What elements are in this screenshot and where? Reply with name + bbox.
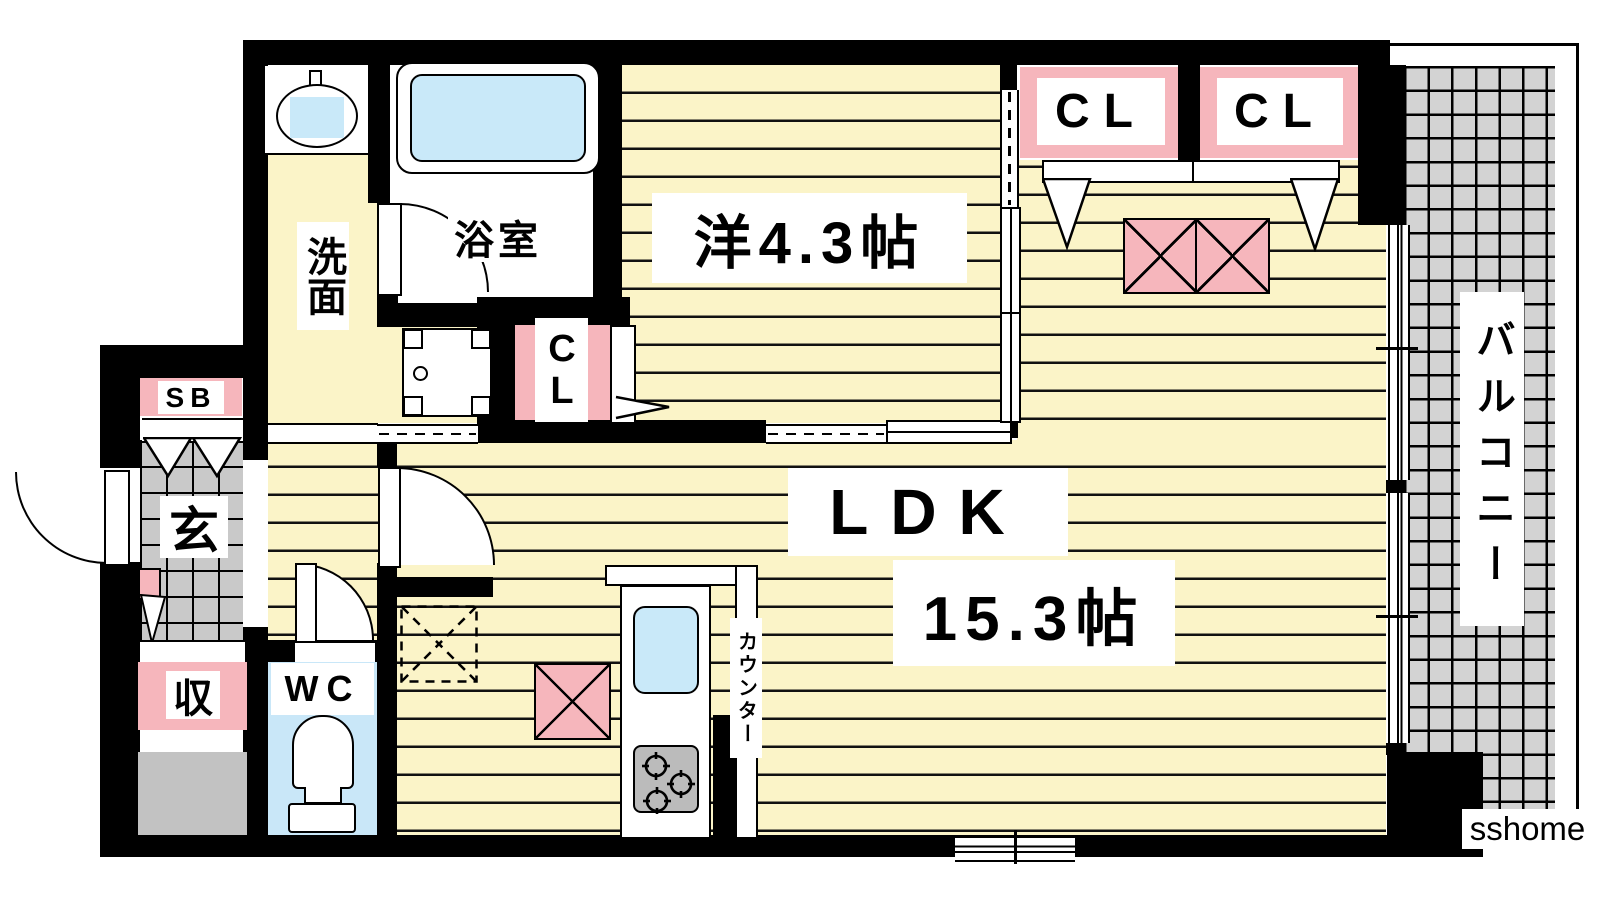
ldk-entry-door-panel <box>378 467 401 568</box>
wall-ldk-door-top <box>377 440 397 467</box>
entrance-label: 玄 <box>160 496 228 558</box>
partition-panel-joint <box>1002 312 1019 314</box>
shoe-box-label: SB <box>158 381 224 414</box>
entrance-step-wedge-icon <box>140 594 168 646</box>
closet-2-label: CL <box>1217 78 1343 145</box>
washer-pan-corner <box>403 396 423 416</box>
bathroom-door-panel <box>377 203 402 296</box>
closet-2-label-text: CL <box>1234 84 1326 139</box>
toilet-bowl <box>292 715 354 789</box>
kitchen-stove <box>633 745 699 813</box>
closet-folding-track-divider <box>1192 162 1194 181</box>
wall-ldk-door-bottom <box>377 563 397 658</box>
washroom-label: 洗面 <box>297 222 349 330</box>
ldk-size-label-text: 15.3帖 <box>923 568 1146 658</box>
fridge-space-box <box>534 663 611 740</box>
counter-label-text: カウンター <box>732 631 761 746</box>
bedroom-sliding-door-open <box>766 424 886 444</box>
washroom-accordion-door <box>377 424 478 444</box>
appliance-space-cell <box>1195 218 1270 294</box>
bathtub-water <box>410 74 586 162</box>
washer-pan-corner <box>403 329 423 349</box>
counter-label: カウンター <box>730 618 762 758</box>
shoe-box-door-icon <box>192 437 242 479</box>
wall-closet-gap <box>1178 65 1200 160</box>
wall-wc-right <box>377 658 397 835</box>
closet-1-label-text: CL <box>1055 84 1147 139</box>
closet-2-folding-door-icon <box>1290 178 1340 252</box>
wall-entrance-left <box>100 345 140 857</box>
meter-box <box>138 752 247 835</box>
closet-small-label-text: CL <box>540 328 583 412</box>
window-tick-upper <box>1376 347 1418 350</box>
wall-hall-stub <box>397 577 493 597</box>
bathroom-label-text: 浴室 <box>454 208 542 266</box>
washer-pan-corner <box>471 329 491 349</box>
balcony-window-lower <box>1388 493 1410 743</box>
washroom-label-text: 洗面 <box>294 236 352 316</box>
washroom-threshold <box>268 423 378 444</box>
bedroom-sliding-door-panel <box>886 420 1012 444</box>
toilet-tank <box>288 803 356 833</box>
washbasin-water <box>290 97 344 138</box>
bedroom-label: 洋4.3帖 <box>652 193 967 283</box>
ldk-label: LDK <box>788 468 1068 556</box>
toilet-pedestal <box>304 787 342 804</box>
storage-label: 収 <box>166 671 220 719</box>
appliance-space-cell <box>1123 218 1198 294</box>
storage-label-text: 収 <box>173 666 213 724</box>
wall-bottom <box>100 835 1387 857</box>
ldk-size-label: 15.3帖 <box>893 560 1175 666</box>
appliance-space-box <box>1123 218 1270 290</box>
opening-entrance-hall <box>243 460 268 627</box>
wall-window-mullion-1 <box>1386 480 1406 493</box>
shoe-box-door-icon <box>143 437 193 479</box>
ldk-label-text: LDK <box>829 475 1027 549</box>
watermark-text: sshome <box>1470 810 1586 848</box>
closet-1-label: CL <box>1037 78 1165 145</box>
washer-pan-drain <box>413 366 428 381</box>
entrance-label-text: 玄 <box>169 491 219 563</box>
shoe-box-label-text: SB <box>166 382 217 414</box>
bathroom-label: 浴室 <box>448 212 548 262</box>
wall-basin-divider <box>368 65 390 203</box>
closet-small-door-arrow-icon <box>615 394 673 420</box>
washer-space-dashed-box <box>400 605 478 683</box>
wc-label: WC <box>271 663 374 715</box>
wall-partition-top-stub <box>1000 65 1017 92</box>
balcony-label: バルコニー <box>1460 292 1524 626</box>
closet-1-folding-door-icon <box>1042 178 1092 250</box>
window-tick-lower <box>1376 615 1418 618</box>
closet-small-label: CL <box>535 318 588 422</box>
bedroom-label-text: 洋4.3帖 <box>694 196 926 280</box>
wc-threshold <box>295 641 375 664</box>
wall-window-mullion-2 <box>1386 743 1406 755</box>
entrance-step-band <box>142 640 245 664</box>
watermark: sshome <box>1462 809 1593 849</box>
kitchen-sink <box>633 606 699 694</box>
entry-door-swing <box>15 472 107 564</box>
bottom-window-tick <box>1014 830 1017 864</box>
floorplan: バルコニー 浴室 洗面 <box>0 0 1600 900</box>
washer-pan-corner <box>471 396 491 416</box>
washer-pan <box>402 328 492 417</box>
partition-sliding-panels <box>1000 207 1021 423</box>
wc-label-text: WC <box>285 668 361 710</box>
balcony-label-text: バルコニー <box>1463 319 1521 599</box>
wall-right-top <box>1358 65 1406 225</box>
wc-door-panel <box>295 563 317 644</box>
entry-door-panel <box>104 470 130 566</box>
stove-burners-icon <box>635 747 701 815</box>
partition-sliding-track <box>1000 90 1019 207</box>
balcony-window-upper <box>1388 225 1410 480</box>
